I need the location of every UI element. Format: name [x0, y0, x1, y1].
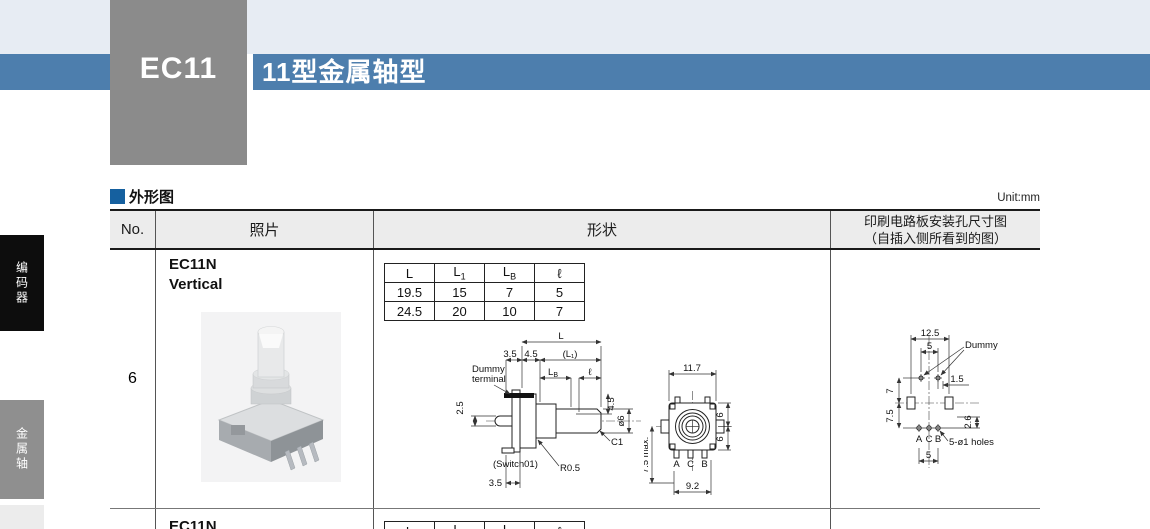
table-row-6: 6 EC11N Vertical [110, 250, 1040, 508]
row7-photo-cell: EC11N [155, 509, 373, 529]
pcb-hole-drawing: 12.5 5 Dummy 1.5 7 [861, 322, 1040, 480]
pcb-label-b: B [935, 434, 941, 445]
sv-label-c1: C1 [611, 437, 623, 448]
sv-label-switch: (Switch01) [493, 459, 538, 470]
dim-r2-l: 24.5 [385, 302, 435, 321]
title-bar-gap [247, 54, 253, 90]
dim-r1-ell: 5 [535, 283, 585, 302]
page-title: 11型金属轴型 [262, 56, 962, 88]
dim2-h-l: L [385, 522, 435, 529]
row7-pcb-cell [830, 509, 1040, 529]
row7-dimension-table: L L1 LB ℓ [384, 521, 585, 529]
sidebar-tab-encoder-label: 编码器 [14, 261, 31, 306]
row6-dimension-table: L L1 LB ℓ 19.5 15 7 5 24.5 20 10 [384, 263, 585, 321]
front-view-drawing: 11.7 6 6 7.5 max. A C B [644, 343, 831, 505]
pcb-dim-7: 7 [885, 388, 896, 393]
section-square-icon [110, 189, 125, 204]
col-header-no: No. [110, 211, 155, 248]
sv-dim-35top: 3.5 [503, 349, 516, 360]
product-code-box: EC11 [110, 0, 247, 165]
pcb-label-holes: 5-ø1 holes [949, 437, 994, 448]
dim-r1-l: 19.5 [385, 283, 435, 302]
row6-shape-cell: L L1 LB ℓ 19.5 15 7 5 24.5 20 10 [373, 250, 830, 508]
fv-dim-117: 11.7 [683, 363, 701, 374]
pcb-dim-5top: 5 [927, 341, 932, 352]
dim-r2-lb: 10 [485, 302, 535, 321]
table-row-7-partial: EC11N L L1 LB ℓ [110, 508, 1040, 529]
dim-h-l: L [385, 264, 435, 283]
fv-dim-75max: 7.5 max. [644, 437, 651, 473]
sv-dim-35bot: 3.5 [489, 478, 502, 489]
unit-label: Unit:mm [890, 192, 1040, 204]
outline-table: No. 照片 形状 印刷电路板安装孔尺寸图 （自插入侧所看到的图） 6 EC11… [110, 209, 1040, 529]
dim-h-ell: ℓ [535, 264, 585, 283]
dim-h-l1: L1 [435, 264, 485, 283]
dim2-h-l1: L1 [435, 522, 485, 529]
pcb-label-dummy: Dummy [965, 340, 998, 351]
pcb-dim-15: 1.5 [950, 374, 963, 385]
fv-label-a: A [673, 459, 680, 470]
row7-no-cell [110, 509, 155, 529]
row7-shape-cell: L L1 LB ℓ [373, 509, 830, 529]
sv-dim-dia6: ø6 [616, 415, 627, 426]
row6-no: 6 [110, 250, 155, 508]
row6-pcb-cell: 12.5 5 Dummy 1.5 7 [830, 250, 1040, 508]
sidebar-tab-metal-shaft[interactable]: 金属轴 [0, 400, 44, 499]
sv-label-r05: R0.5 [560, 463, 580, 474]
sv-dim-LB: LB [548, 367, 558, 379]
sidebar-tab-encoder[interactable]: 编码器 [0, 235, 44, 331]
dim-h-lb: LB [485, 264, 535, 283]
row6-model-label: EC11N Vertical [169, 255, 222, 295]
sv-dim-L1: (L₁) [563, 349, 578, 360]
dim-r2-l1: 20 [435, 302, 485, 321]
pcb-dim-125: 12.5 [921, 328, 940, 339]
sv-dim-45top: 4.5 [524, 349, 537, 360]
col-header-photo: 照片 [155, 211, 373, 248]
pcb-dim-75: 7.5 [885, 409, 896, 422]
col-header-shape: 形状 [373, 211, 830, 248]
sv-dim-ell: ℓ [588, 367, 592, 378]
product-photo [201, 312, 341, 482]
row7-model: EC11N [169, 517, 217, 529]
datasheet-page: EC11 11型金属轴型 编码器 金属轴 外形图 Unit:mm No. 照片 … [0, 0, 1150, 529]
dim-r1-l1: 15 [435, 283, 485, 302]
sidebar-tab-next[interactable] [0, 505, 44, 529]
sv-dim-25: 2.5 [455, 401, 466, 414]
col-header-pcb-line1: 印刷电路板安装孔尺寸图 [864, 213, 1007, 230]
dim2-h-ell: ℓ [535, 522, 585, 529]
side-view-drawing: L 3.5 4.5 (L₁) LB ℓ [436, 330, 651, 502]
dim-r1-lb: 7 [485, 283, 535, 302]
section-header: 外形图 [110, 186, 174, 204]
row6-variant: Vertical [169, 275, 222, 295]
pcb-label-a: A [916, 434, 923, 445]
pcb-dim-26: 2.6 [963, 415, 974, 428]
col-header-pcb: 印刷电路板安装孔尺寸图 （自插入侧所看到的图） [830, 211, 1040, 248]
sv-dim-L: L [558, 331, 563, 342]
pcb-label-c: C [926, 434, 933, 445]
fv-dim-6bot: 6 [715, 436, 726, 441]
sv-label-dummy2: terminal [472, 374, 506, 385]
dim2-h-lb: LB [485, 522, 535, 529]
col-header-pcb-line2: （自插入侧所看到的图） [864, 230, 1007, 247]
dim-r2-ell: 7 [535, 302, 585, 321]
section-title: 外形图 [129, 189, 174, 206]
sv-dim-45v: 4.5 [606, 397, 617, 410]
pcb-dim-5bot: 5 [926, 450, 931, 461]
sidebar-tab-metal-shaft-label: 金属轴 [14, 427, 31, 472]
table-header-row: No. 照片 形状 印刷电路板安装孔尺寸图 （自插入侧所看到的图） [110, 209, 1040, 250]
row6-model: EC11N [169, 255, 222, 275]
fv-label-b: B [701, 459, 707, 470]
fv-label-c: C [687, 459, 694, 470]
fv-dim-92: 9.2 [686, 481, 699, 492]
row6-photo-cell: EC11N Vertical [155, 250, 373, 508]
product-code: EC11 [140, 52, 217, 86]
fv-dim-6top: 6 [715, 412, 726, 417]
